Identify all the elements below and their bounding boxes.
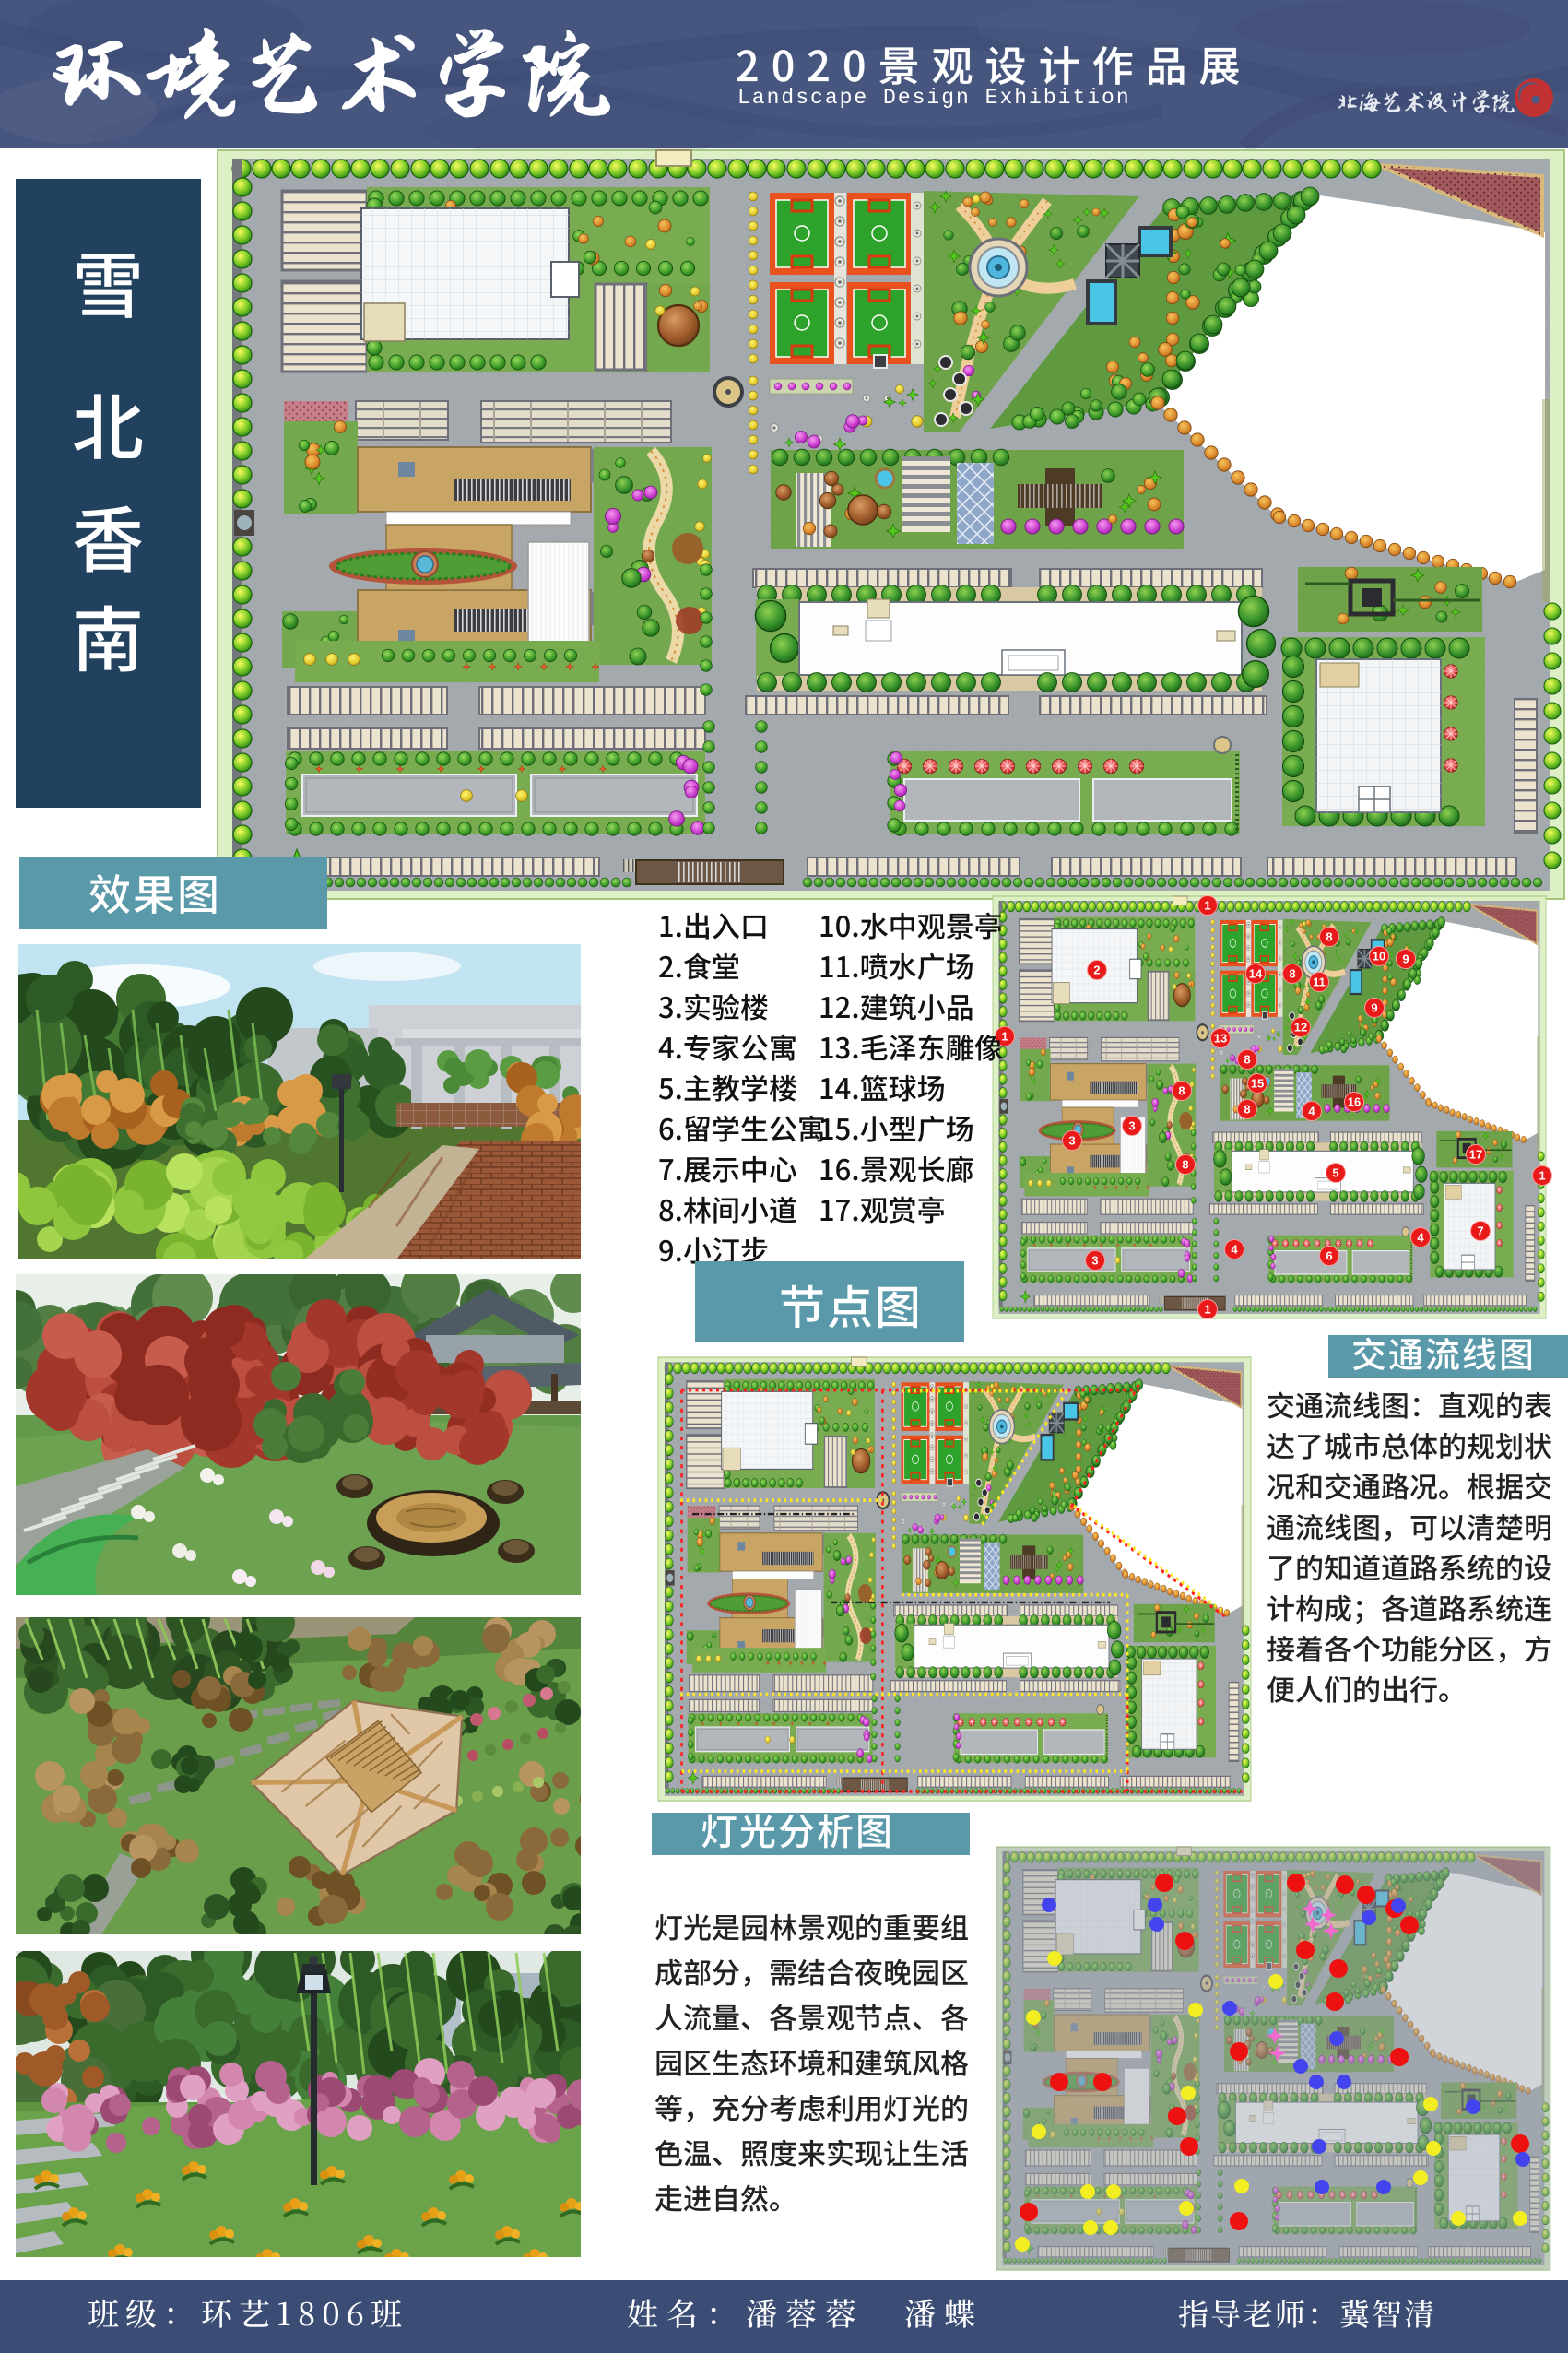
svg-text:17: 17 [1469,1148,1482,1162]
svg-text:1: 1 [1204,899,1210,913]
svg-text:8: 8 [1182,1158,1188,1172]
svg-text:13: 13 [1214,1032,1227,1046]
svg-text:8: 8 [1244,1053,1250,1067]
svg-text:12: 12 [1294,1021,1307,1035]
svg-text:3: 3 [1128,1119,1135,1133]
svg-text:6: 6 [1326,1249,1332,1263]
svg-text:15: 15 [1251,1077,1264,1091]
svg-text:14: 14 [1249,967,1263,981]
svg-text:3: 3 [1091,1254,1098,1268]
svg-text:4: 4 [1308,1105,1315,1118]
svg-text:10: 10 [1373,950,1385,964]
svg-text:8: 8 [1178,1084,1185,1098]
svg-text:9: 9 [1371,1001,1377,1015]
svg-text:4: 4 [1417,1231,1424,1245]
svg-text:9: 9 [1402,952,1409,966]
svg-text:11: 11 [1313,975,1326,989]
svg-text:1: 1 [1539,1169,1545,1183]
svg-text:8: 8 [1326,930,1332,944]
svg-text:1: 1 [1204,1303,1210,1317]
svg-text:1: 1 [1001,1030,1008,1044]
svg-text:3: 3 [1068,1134,1075,1148]
svg-text:8: 8 [1289,967,1295,981]
svg-text:16: 16 [1348,1095,1361,1109]
svg-text:4: 4 [1231,1243,1238,1257]
svg-text:5: 5 [1332,1166,1338,1180]
svg-text:2: 2 [1093,964,1100,977]
svg-text:7: 7 [1477,1224,1483,1238]
svg-text:8: 8 [1244,1103,1250,1117]
svg-text:Landscape Design Exhibition: Landscape Design Exhibition [737,86,1131,110]
